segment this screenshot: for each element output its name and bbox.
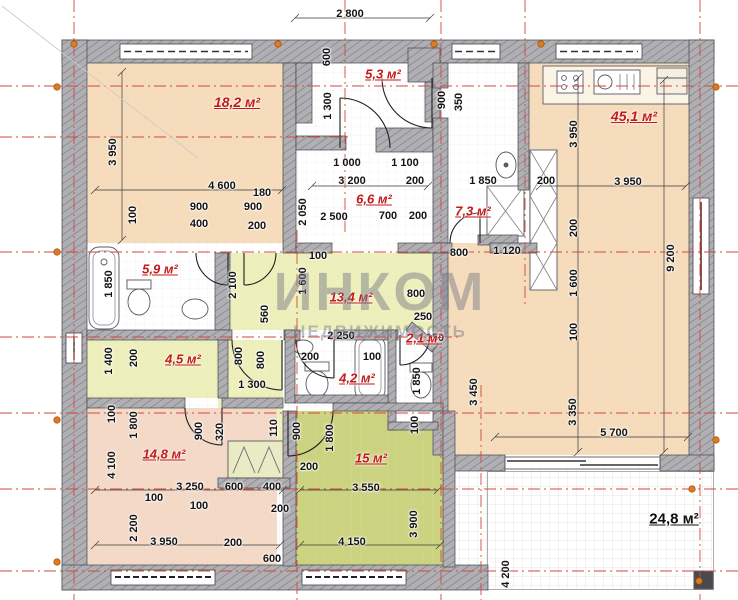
- window-right: [693, 198, 709, 294]
- room-label-utility: 7,3 м²: [455, 204, 491, 219]
- toilet-1-bowl: [128, 289, 150, 315]
- dim-label: 900: [436, 91, 448, 109]
- dim-label: 400: [263, 481, 281, 493]
- toilet-2-tank: [305, 362, 329, 371]
- wall-int-1: [283, 63, 296, 253]
- window-top-2: [452, 44, 500, 59]
- room-label-entry-hall: 5,3 м²: [365, 67, 401, 82]
- dim-label: 800: [255, 351, 267, 369]
- dim-label: 200: [537, 175, 555, 187]
- dim-label: 3 950: [107, 138, 119, 166]
- dim-label: 200: [271, 503, 289, 515]
- dim-label: 4 150: [338, 536, 366, 548]
- dim-label: 320: [214, 423, 226, 441]
- room-label-bathroom-2: 4,2 м²: [339, 371, 375, 386]
- dim-label: 900: [244, 201, 262, 213]
- dim-label: 3 950: [614, 176, 642, 188]
- dim-label: 200: [224, 537, 242, 549]
- wall-int-6: [433, 118, 448, 243]
- dim-label: 700: [379, 210, 397, 222]
- wall-int-5: [433, 63, 448, 88]
- wall-int-7: [518, 63, 529, 190]
- room-label-living-kitchen: 45,1 м²: [611, 108, 657, 124]
- dim-label: 1 850: [411, 367, 423, 395]
- room-label-bedroom-2: 14,8 м²: [143, 447, 186, 462]
- toilet-2-bowl: [306, 371, 328, 397]
- dim-label: 900: [291, 422, 303, 440]
- dim-label: 250: [414, 311, 432, 323]
- dim-label: 1 600: [297, 267, 309, 295]
- room-label-terrace: 24,8 м²: [649, 511, 698, 528]
- dim-label: 350: [453, 93, 465, 111]
- wall-int-25: [222, 398, 283, 408]
- kitchen-sink: [594, 70, 640, 94]
- dim-label: 800: [233, 347, 245, 365]
- dim-label: 2 250: [327, 330, 355, 342]
- window-bottom-2: [302, 570, 406, 585]
- dim-label: 2 800: [336, 8, 364, 20]
- floor-plan: 18,2 м² 5,3 м² 45,1 м² 6,6 м² 7,3 м² 5,9…: [0, 0, 738, 600]
- dim-label: 600: [263, 553, 281, 565]
- dim-label: 1 000: [333, 157, 361, 169]
- dim-label: 200: [128, 349, 140, 367]
- dim-label: 100: [363, 351, 381, 363]
- dim-label: 100: [145, 492, 163, 504]
- dim-label: 1 600: [568, 269, 580, 297]
- dim-label: 100: [309, 250, 327, 262]
- room-label-bathroom-1: 5,9 м²: [142, 262, 178, 277]
- sink-1: [182, 299, 208, 319]
- dim-label: 9 200: [665, 244, 677, 272]
- dim-label: 600: [321, 48, 333, 66]
- dim-label: 200: [300, 461, 318, 473]
- dim-label: 4 200: [500, 560, 512, 588]
- room-label-hall: 13,4 м²: [330, 290, 373, 305]
- wall-exterior-left: [62, 40, 87, 590]
- dim-label: 560: [259, 305, 271, 323]
- dim-label: 800: [407, 288, 425, 300]
- dim-label: 600: [225, 481, 243, 493]
- dim-label: 3 450: [468, 378, 480, 406]
- dim-label: 3 350: [567, 398, 579, 426]
- wardrobe: [228, 441, 286, 478]
- wall-int-21: [295, 395, 388, 403]
- dim-label: 100: [568, 323, 580, 341]
- toilet-1-tank: [127, 280, 151, 289]
- dim-label: 1 850: [103, 270, 115, 298]
- dim-label: 1 100: [391, 157, 419, 169]
- dim-label: 4 600: [208, 180, 236, 192]
- room-label-wc: 2,1 м²: [406, 331, 442, 346]
- dim-label: 5 700: [600, 427, 628, 439]
- dim-label: 1 300: [238, 379, 266, 391]
- dim-label: 200: [406, 175, 424, 187]
- wall-int-19: [388, 330, 396, 430]
- dim-label: 1 300: [322, 92, 334, 120]
- dim-label: 1 800: [128, 411, 140, 439]
- wall-int-17: [218, 340, 228, 398]
- dim-label: 100: [106, 405, 118, 423]
- dim-label: 3 900: [408, 510, 420, 538]
- dim-label: 900: [190, 201, 208, 213]
- window-top-3: [556, 44, 642, 59]
- wall-int-13: [87, 330, 232, 340]
- dim-label: 1 850: [469, 175, 497, 187]
- dim-label: 4 100: [106, 451, 118, 479]
- room-label-bedroom-1: 18,2 м²: [214, 94, 260, 110]
- dim-label: 1 800: [324, 424, 336, 452]
- sliding-door-terrace: [505, 457, 660, 469]
- room-label-hallway: 6,6 м²: [356, 192, 392, 207]
- dim-label: 3 950: [150, 536, 178, 548]
- stove: [557, 71, 583, 93]
- dim-label: 100: [127, 206, 139, 224]
- dim-label: 3 200: [338, 175, 366, 187]
- wall-terrace-right: [660, 455, 714, 471]
- dim-label: 200: [568, 219, 580, 237]
- dim-label: 180: [253, 187, 271, 199]
- wall-int-18: [285, 330, 295, 403]
- dim-label: 2 100: [227, 271, 239, 299]
- dim-label: 3 250: [176, 481, 204, 493]
- dim-label: 2 200: [128, 514, 140, 542]
- room-label-bedroom-3: 15 м²: [355, 451, 387, 466]
- dim-label: 110: [268, 419, 280, 437]
- dim-label: 400: [190, 218, 208, 230]
- dim-label: 1 400: [103, 347, 115, 375]
- dim-label: 2 050: [297, 198, 309, 226]
- dim-label: 200: [301, 351, 319, 363]
- dim-label: 800: [450, 247, 468, 259]
- dim-label: 200: [409, 210, 427, 222]
- wall-int-10: [398, 243, 452, 253]
- dim-label: 900: [193, 422, 205, 440]
- wall-int-2: [296, 63, 312, 123]
- wall-int-4: [376, 128, 433, 152]
- dim-label: 1 120: [493, 245, 521, 257]
- dim-label: 100: [409, 416, 421, 434]
- fridge: [657, 68, 687, 94]
- wall-int-24: [87, 398, 185, 408]
- utility-sink-drain: [504, 163, 508, 167]
- window-bottom-1: [111, 570, 215, 585]
- wall-int-3: [296, 136, 346, 150]
- dim-label: 2 500: [320, 211, 348, 223]
- wall-int-22: [333, 403, 443, 411]
- dim-label: 200: [248, 220, 266, 232]
- dim-label: 100: [190, 500, 208, 512]
- window-top-1: [120, 44, 252, 59]
- room-label-corridor: 4,5 м²: [165, 352, 201, 367]
- dim-label: 3 950: [568, 120, 580, 148]
- dim-label: 3 550: [352, 482, 380, 494]
